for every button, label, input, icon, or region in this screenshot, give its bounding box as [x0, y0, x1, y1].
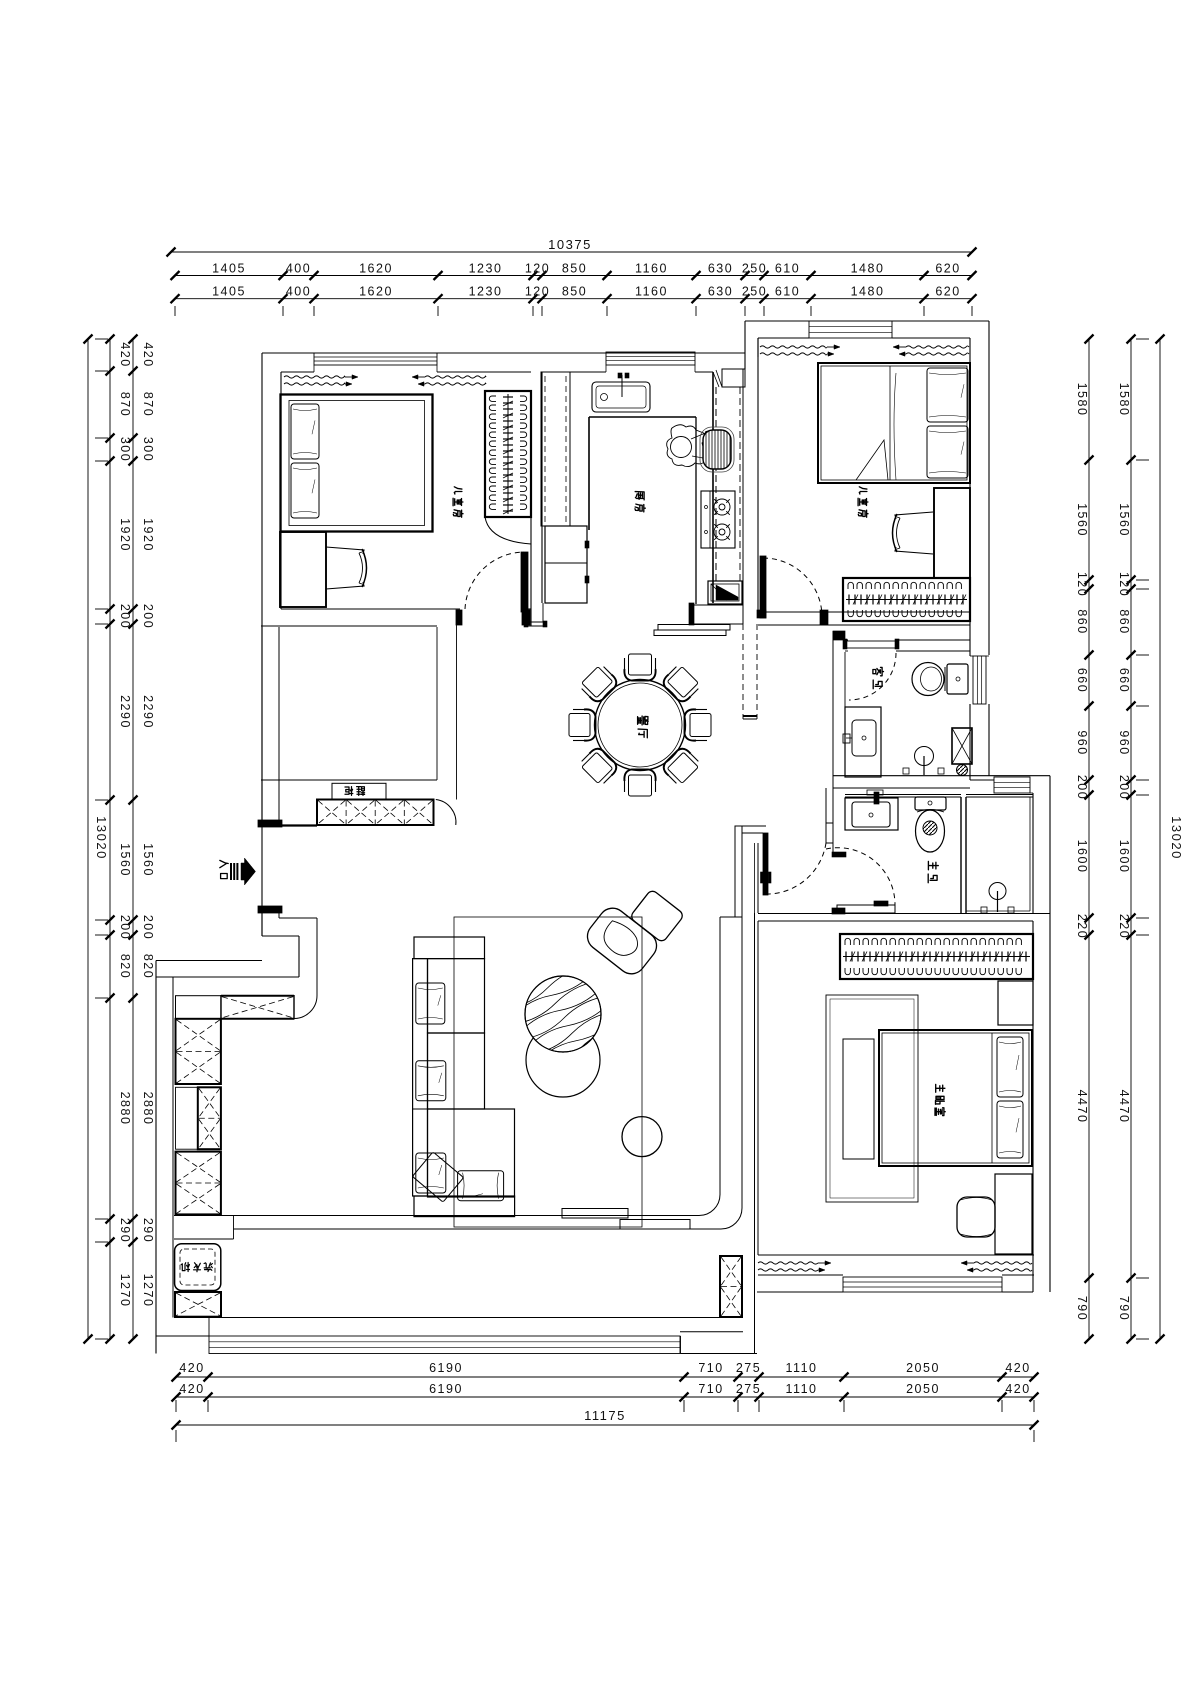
svg-text:4470: 4470 — [1075, 1090, 1089, 1124]
svg-text:660: 660 — [1075, 668, 1089, 693]
svg-text:2880: 2880 — [118, 1092, 132, 1126]
svg-text:420: 420 — [179, 1382, 204, 1396]
svg-text:1230: 1230 — [469, 285, 503, 299]
svg-text:420: 420 — [1005, 1361, 1030, 1375]
svg-text:1580: 1580 — [1117, 383, 1131, 417]
svg-text:10375: 10375 — [548, 237, 592, 252]
svg-text:710: 710 — [698, 1382, 723, 1396]
svg-text:1600: 1600 — [1075, 840, 1089, 874]
svg-text:1405: 1405 — [212, 285, 246, 299]
svg-text:2050: 2050 — [906, 1382, 940, 1396]
svg-text:1160: 1160 — [635, 285, 668, 299]
svg-text:220: 220 — [1117, 914, 1131, 939]
svg-text:960: 960 — [1117, 730, 1131, 755]
svg-text:4470: 4470 — [1117, 1090, 1131, 1124]
svg-text:400: 400 — [286, 285, 311, 299]
svg-text:660: 660 — [1117, 668, 1131, 693]
svg-text:1920: 1920 — [118, 518, 132, 552]
svg-text:610: 610 — [775, 285, 800, 299]
svg-text:275: 275 — [736, 1382, 761, 1396]
svg-text:860: 860 — [1117, 609, 1131, 634]
svg-text:2290: 2290 — [141, 695, 155, 729]
svg-text:620: 620 — [935, 285, 960, 299]
svg-text:1620: 1620 — [359, 285, 393, 299]
svg-text:1480: 1480 — [851, 285, 885, 299]
svg-text:820: 820 — [141, 954, 155, 979]
svg-text:2050: 2050 — [906, 1361, 940, 1375]
svg-text:120: 120 — [1117, 572, 1131, 597]
svg-text:860: 860 — [1075, 609, 1089, 634]
svg-text:1920: 1920 — [141, 518, 155, 552]
svg-text:1600: 1600 — [1117, 840, 1131, 874]
svg-text:870: 870 — [141, 392, 155, 417]
svg-text:290: 290 — [141, 1218, 155, 1243]
svg-text:1160: 1160 — [635, 262, 668, 276]
svg-text:820: 820 — [118, 954, 132, 979]
svg-text:420: 420 — [141, 342, 155, 367]
svg-text:200: 200 — [118, 604, 132, 629]
svg-text:420: 420 — [179, 1361, 204, 1375]
svg-text:870: 870 — [118, 392, 132, 417]
svg-text:1270: 1270 — [118, 1274, 132, 1308]
svg-text:200: 200 — [1075, 775, 1089, 800]
svg-text:1560: 1560 — [141, 843, 155, 877]
svg-text:710: 710 — [698, 1361, 723, 1375]
svg-text:13020: 13020 — [94, 816, 109, 860]
svg-text:200: 200 — [141, 604, 155, 629]
svg-text:200: 200 — [141, 915, 155, 940]
svg-text:200: 200 — [1117, 775, 1131, 800]
svg-text:630: 630 — [708, 262, 733, 276]
svg-text:790: 790 — [1075, 1296, 1089, 1321]
svg-text:250: 250 — [742, 285, 767, 299]
svg-text:1580: 1580 — [1075, 383, 1089, 417]
svg-text:2880: 2880 — [141, 1092, 155, 1126]
svg-text:6190: 6190 — [429, 1361, 463, 1375]
svg-text:1270: 1270 — [141, 1274, 155, 1308]
svg-text:620: 620 — [935, 262, 960, 276]
svg-text:1560: 1560 — [118, 843, 132, 877]
svg-text:120: 120 — [525, 285, 550, 299]
svg-text:6190: 6190 — [429, 1382, 463, 1396]
svg-text:850: 850 — [562, 262, 587, 276]
svg-text:1110: 1110 — [786, 1382, 818, 1396]
svg-text:420: 420 — [118, 342, 132, 367]
svg-text:120: 120 — [1075, 572, 1089, 597]
svg-text:1480: 1480 — [851, 262, 885, 276]
svg-text:13020: 13020 — [1169, 816, 1184, 860]
svg-text:250: 250 — [742, 262, 767, 276]
svg-text:420: 420 — [1005, 1382, 1030, 1396]
svg-text:630: 630 — [708, 285, 733, 299]
svg-text:1620: 1620 — [359, 262, 393, 276]
svg-text:1230: 1230 — [469, 262, 503, 276]
svg-text:1110: 1110 — [786, 1361, 818, 1375]
svg-text:2290: 2290 — [118, 695, 132, 729]
svg-text:300: 300 — [141, 437, 155, 462]
svg-text:1560: 1560 — [1117, 503, 1131, 537]
svg-text:960: 960 — [1075, 730, 1089, 755]
svg-text:220: 220 — [1075, 914, 1089, 939]
svg-text:400: 400 — [286, 262, 311, 276]
svg-text:1405: 1405 — [212, 262, 246, 276]
svg-text:1560: 1560 — [1075, 503, 1089, 537]
svg-text:275: 275 — [736, 1361, 761, 1375]
svg-text:790: 790 — [1117, 1296, 1131, 1321]
svg-text:610: 610 — [775, 262, 800, 276]
svg-text:11175: 11175 — [584, 1408, 626, 1423]
svg-text:850: 850 — [562, 285, 587, 299]
svg-text:120: 120 — [525, 262, 550, 276]
svg-text:200: 200 — [118, 915, 132, 940]
